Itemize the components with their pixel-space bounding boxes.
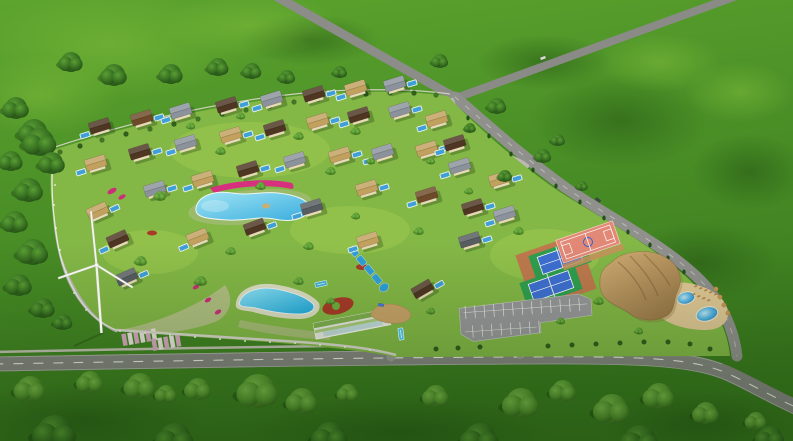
roadside-hedge-shrub — [546, 344, 551, 349]
north-hedge-shrub — [123, 131, 128, 136]
tree-canopy-lobe — [560, 319, 565, 324]
wall-post — [119, 330, 121, 332]
tree-canopy-lobe — [561, 386, 576, 401]
roadside-hedge-shrub — [456, 346, 461, 351]
tree-canopy-lobe — [28, 383, 45, 400]
tree-canopy-lobe — [598, 299, 603, 304]
tree-canopy-lobe — [347, 389, 359, 401]
roadside-hedge-shrub — [594, 342, 599, 347]
wall-post — [344, 346, 346, 348]
cypress-tree — [648, 243, 651, 248]
tree-canopy-lobe — [496, 102, 507, 113]
parasol — [726, 311, 730, 315]
tree-canopy-lobe — [112, 70, 127, 85]
turbine-hub — [95, 263, 99, 267]
wall-post — [319, 344, 321, 346]
tree-canopy-lobe — [298, 279, 303, 284]
tree-canopy-lobe — [27, 185, 43, 201]
tree-canopy-lobe — [308, 244, 313, 249]
tree-canopy-lobe — [300, 395, 317, 412]
north-hedge-shrub — [433, 92, 438, 97]
tree-canopy-lobe — [542, 153, 551, 162]
tree-canopy-lobe — [657, 390, 674, 407]
tree-canopy-lobe — [339, 69, 347, 77]
north-hedge-shrub — [195, 116, 200, 121]
tree-canopy-lobe — [638, 329, 643, 334]
tree-canopy-lobe — [50, 158, 65, 173]
tree-canopy-lobe — [557, 137, 565, 145]
wall-post — [369, 349, 371, 351]
upper-pool-shallow — [201, 200, 229, 212]
roadside-hedge-shrub — [688, 342, 693, 347]
north-hedge-shrub — [243, 107, 248, 112]
north-hedge-shrub — [411, 90, 416, 95]
tree-canopy-lobe — [439, 58, 448, 67]
parasol — [718, 295, 722, 299]
tree-canopy-lobe — [138, 380, 155, 397]
tree-canopy-lobe — [355, 214, 360, 219]
cypress-tree — [682, 270, 685, 275]
fence-post — [85, 309, 87, 311]
cypress-tree — [602, 216, 605, 221]
wall-post — [194, 336, 196, 338]
wall-post — [169, 334, 171, 336]
wall-post — [269, 341, 271, 343]
cypress-tree — [578, 200, 581, 205]
north-hedge-shrub — [57, 149, 62, 154]
tree-canopy-lobe — [519, 396, 539, 416]
tree-canopy-lobe — [370, 159, 375, 164]
north-hedge-shrub — [77, 143, 82, 148]
tree-canopy-lobe — [251, 67, 262, 78]
tree-canopy-lobe — [430, 159, 435, 164]
tree-canopy-lobe — [469, 126, 476, 133]
tree-canopy-lobe — [518, 229, 523, 234]
tree-canopy-lobe — [468, 189, 473, 194]
wall-post — [219, 338, 221, 340]
fence-post — [55, 227, 57, 229]
tree-canopy-lobe — [9, 157, 22, 170]
tree-canopy-lobe — [31, 246, 48, 263]
red-flower-bed — [147, 231, 157, 236]
tree-canopy-lobe — [434, 391, 449, 406]
upper-pool-island — [262, 204, 270, 209]
fence-post — [59, 249, 61, 251]
tree-canopy-lobe — [286, 74, 295, 83]
tree-canopy-lobe — [169, 70, 182, 83]
roadside-hedge-shrub — [708, 347, 713, 352]
tree-canopy-lobe — [330, 169, 335, 174]
tree-canopy-lobe — [355, 129, 360, 134]
roadside-hedge-shrub — [618, 341, 623, 346]
roadside-hedge-shrub — [434, 347, 439, 352]
tree-canopy-lobe — [220, 149, 225, 154]
cypress-tree — [466, 116, 469, 121]
tree-canopy-lobe — [430, 309, 435, 314]
tree-canopy-lobe — [190, 124, 195, 129]
tree-canopy-lobe — [41, 304, 54, 317]
tree-canopy-lobe — [17, 280, 32, 295]
aerial-site-render — [0, 0, 793, 441]
cypress-tree — [626, 230, 629, 235]
fence-post — [73, 292, 75, 294]
tree-canopy-lobe — [704, 408, 719, 423]
roadside-hedge-shrub — [666, 340, 671, 345]
tree-canopy-lobe — [260, 184, 265, 189]
site-plan-rendering — [0, 0, 793, 441]
tree-canopy-lobe — [418, 229, 423, 234]
tree-canopy-lobe — [140, 259, 147, 266]
tree-canopy-lobe — [69, 58, 82, 71]
tree-canopy-lobe — [755, 417, 767, 429]
tree-canopy-lobe — [230, 249, 235, 254]
tree-canopy-lobe — [159, 194, 166, 201]
tree-canopy-lobe — [240, 114, 245, 119]
fence-post — [65, 271, 67, 273]
tree-canopy-lobe — [196, 384, 211, 399]
roadside-hedge-shrub — [478, 345, 483, 350]
parasol — [722, 303, 726, 307]
tree-canopy-lobe — [14, 103, 29, 118]
tree-canopy-lobe — [504, 173, 512, 181]
tree-canopy-lobe — [88, 377, 103, 392]
wall-post — [144, 332, 146, 334]
tree-canopy-lobe — [217, 63, 229, 75]
parasol — [714, 287, 718, 291]
north-hedge-shrub — [291, 99, 296, 104]
tree-canopy-lobe — [62, 318, 73, 329]
north-hedge-shrub — [171, 121, 176, 126]
roadside-hedge-shrub — [570, 343, 575, 348]
cypress-tree — [509, 152, 512, 157]
tree-canopy-lobe — [298, 134, 303, 139]
roadside-hedge-shrub — [642, 340, 647, 345]
tree-canopy-lobe — [200, 279, 207, 286]
wall-post — [244, 340, 246, 342]
tree-canopy-lobe — [13, 217, 28, 232]
cypress-tree — [554, 184, 557, 189]
grass-light-patch — [685, 62, 793, 122]
tree-canopy-lobe — [581, 184, 588, 191]
cypress-tree — [531, 168, 534, 173]
north-hedge-shrub — [99, 137, 104, 142]
tree-canopy-lobe — [330, 299, 335, 304]
tree-canopy-lobe — [165, 390, 177, 402]
cypress-tree — [487, 134, 490, 139]
fence-post — [53, 204, 55, 206]
wall-post — [294, 342, 296, 344]
tree-canopy-lobe — [255, 384, 277, 406]
fence-post — [54, 184, 56, 186]
tree-canopy-lobe — [38, 136, 56, 154]
tree-canopy-lobe — [610, 402, 630, 422]
